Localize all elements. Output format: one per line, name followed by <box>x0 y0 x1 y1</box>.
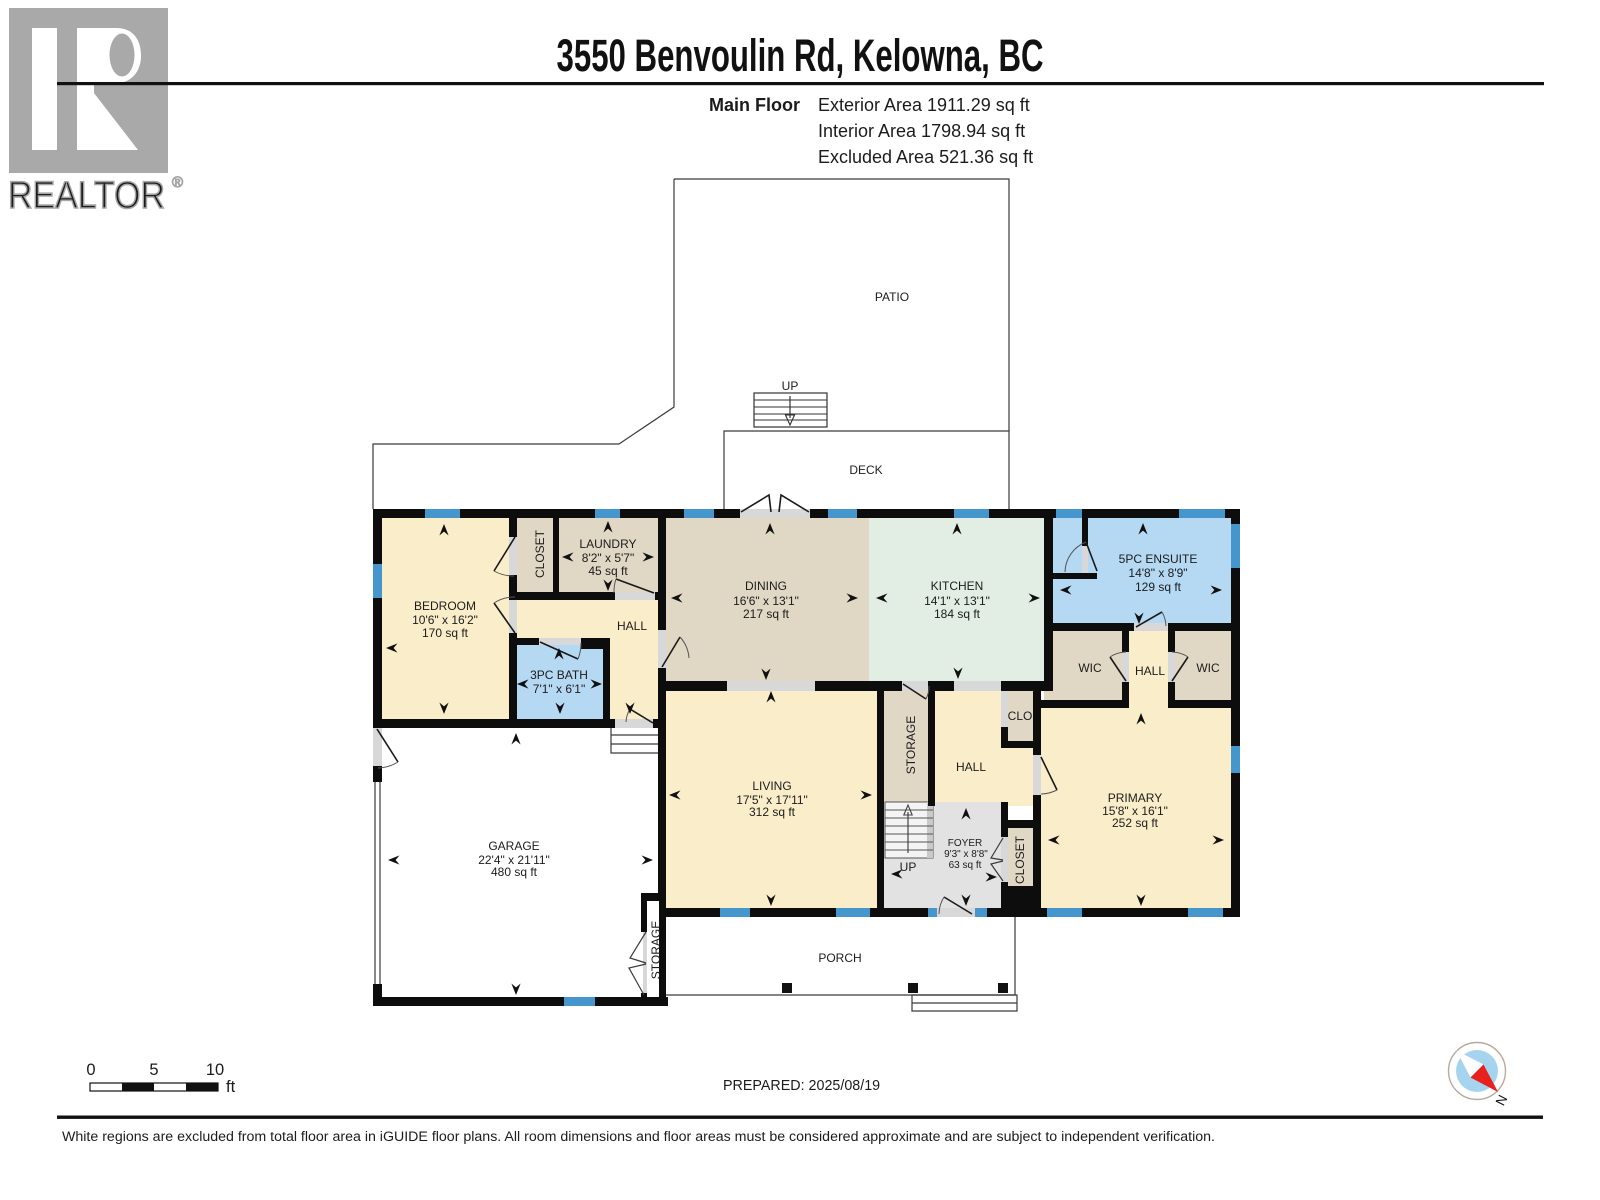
svg-text:5PC ENSUITE: 5PC ENSUITE <box>1119 552 1198 566</box>
svg-text:CLOSET: CLOSET <box>1013 835 1027 884</box>
svg-text:45 sq ft: 45 sq ft <box>588 564 628 578</box>
svg-text:217 sq ft: 217 sq ft <box>743 607 790 621</box>
svg-text:WIC: WIC <box>1078 661 1102 675</box>
svg-text:16'6" x 13'1": 16'6" x 13'1" <box>733 594 799 608</box>
svg-text:HALL: HALL <box>617 619 647 633</box>
svg-text:312 sq ft: 312 sq ft <box>749 805 796 819</box>
svg-text:CLO: CLO <box>1008 709 1033 723</box>
svg-text:PREPARED: 2025/08/19: PREPARED: 2025/08/19 <box>723 1078 880 1094</box>
svg-text:WIC: WIC <box>1196 661 1220 675</box>
svg-text:Interior Area 1798.94 sq ft: Interior Area 1798.94 sq ft <box>818 121 1025 141</box>
svg-text:3PC BATH: 3PC BATH <box>530 668 588 682</box>
svg-text:®: ® <box>172 174 183 191</box>
svg-text:5: 5 <box>149 1061 158 1079</box>
svg-text:BEDROOM: BEDROOM <box>414 599 476 613</box>
svg-text:GARAGE: GARAGE <box>488 839 539 853</box>
svg-text:Main Floor: Main Floor <box>709 95 800 115</box>
svg-text:UP: UP <box>900 860 917 874</box>
svg-text:9'3" x 8'8": 9'3" x 8'8" <box>944 849 988 860</box>
svg-text:252 sq ft: 252 sq ft <box>1112 816 1159 830</box>
svg-text:14'1" x 13'1": 14'1" x 13'1" <box>924 594 990 608</box>
svg-text:CLOSET: CLOSET <box>533 529 547 578</box>
svg-text:170 sq ft: 170 sq ft <box>422 626 469 640</box>
svg-text:PORCH: PORCH <box>818 951 861 965</box>
svg-text:LIVING: LIVING <box>752 779 791 793</box>
svg-text:STORAGE: STORAGE <box>649 921 663 979</box>
svg-text:HALL: HALL <box>956 760 986 774</box>
svg-text:0: 0 <box>86 1061 95 1079</box>
svg-text:REALTOR: REALTOR <box>8 175 165 217</box>
svg-text:Exterior Area 1911.29 sq ft: Exterior Area 1911.29 sq ft <box>818 95 1030 115</box>
svg-text:LAUNDRY: LAUNDRY <box>579 537 636 551</box>
svg-text:480 sq ft: 480 sq ft <box>491 865 538 879</box>
svg-text:10: 10 <box>206 1061 224 1079</box>
svg-text:DECK: DECK <box>849 463 882 477</box>
svg-text:14'8" x 8'9": 14'8" x 8'9" <box>1128 566 1187 580</box>
svg-text:8'2" x 5'7": 8'2" x 5'7" <box>582 551 634 565</box>
svg-text:DINING: DINING <box>745 579 787 593</box>
svg-text:White regions are excluded fro: White regions are excluded from total fl… <box>62 1129 1215 1145</box>
svg-text:ft: ft <box>226 1078 236 1096</box>
svg-text:HALL: HALL <box>1135 664 1165 678</box>
svg-text:63 sq ft: 63 sq ft <box>949 860 982 871</box>
svg-text:129 sq ft: 129 sq ft <box>1135 580 1182 594</box>
svg-text:3550 Benvoulin Rd, Kelowna, BC: 3550 Benvoulin Rd, Kelowna, BC <box>557 30 1044 81</box>
svg-text:10'6" x 16'2": 10'6" x 16'2" <box>412 613 478 627</box>
svg-text:184 sq ft: 184 sq ft <box>934 607 981 621</box>
svg-text:Excluded Area 521.36 sq ft: Excluded Area 521.36 sq ft <box>818 147 1033 167</box>
svg-text:STORAGE: STORAGE <box>904 716 918 774</box>
svg-text:7'1" x 6'1": 7'1" x 6'1" <box>533 682 585 696</box>
svg-text:PRIMARY: PRIMARY <box>1108 791 1162 805</box>
svg-text:UP: UP <box>782 379 799 393</box>
svg-text:KITCHEN: KITCHEN <box>931 579 984 593</box>
svg-text:FOYER: FOYER <box>948 838 982 849</box>
svg-text:PATIO: PATIO <box>875 290 909 304</box>
